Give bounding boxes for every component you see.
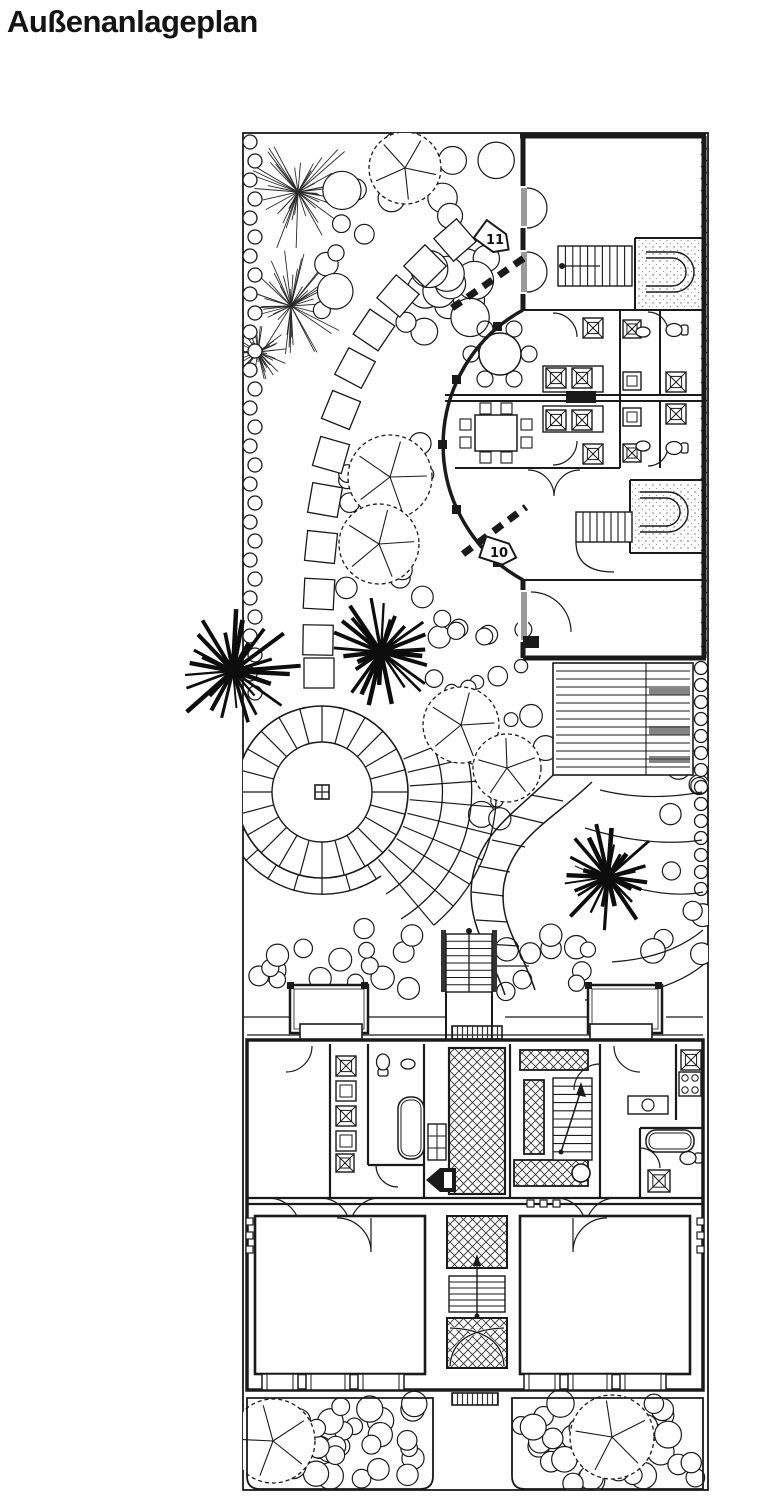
entrance-marker-10: 10 xyxy=(479,536,519,568)
stairs-lower xyxy=(576,512,632,542)
wood-deck xyxy=(553,663,693,775)
entry-mat-bottom xyxy=(447,1318,507,1368)
stairs-bottom-unit xyxy=(553,1078,592,1160)
site-plan: 11 10 xyxy=(0,0,780,1501)
stair-court xyxy=(449,1048,505,1194)
marker-label: 11 xyxy=(486,233,504,248)
garden-stairs xyxy=(441,928,497,1040)
lower-house xyxy=(246,1024,704,1390)
porch-right xyxy=(590,1024,652,1039)
square-table xyxy=(460,403,532,463)
porch-left xyxy=(300,1024,362,1039)
room-left xyxy=(255,1216,425,1374)
entry-grate xyxy=(452,1393,498,1405)
upper-house xyxy=(438,136,707,658)
marker-label: 10 xyxy=(490,546,508,561)
room-right xyxy=(520,1216,690,1374)
circular-plaza xyxy=(220,706,408,895)
porch-center xyxy=(452,1026,502,1039)
